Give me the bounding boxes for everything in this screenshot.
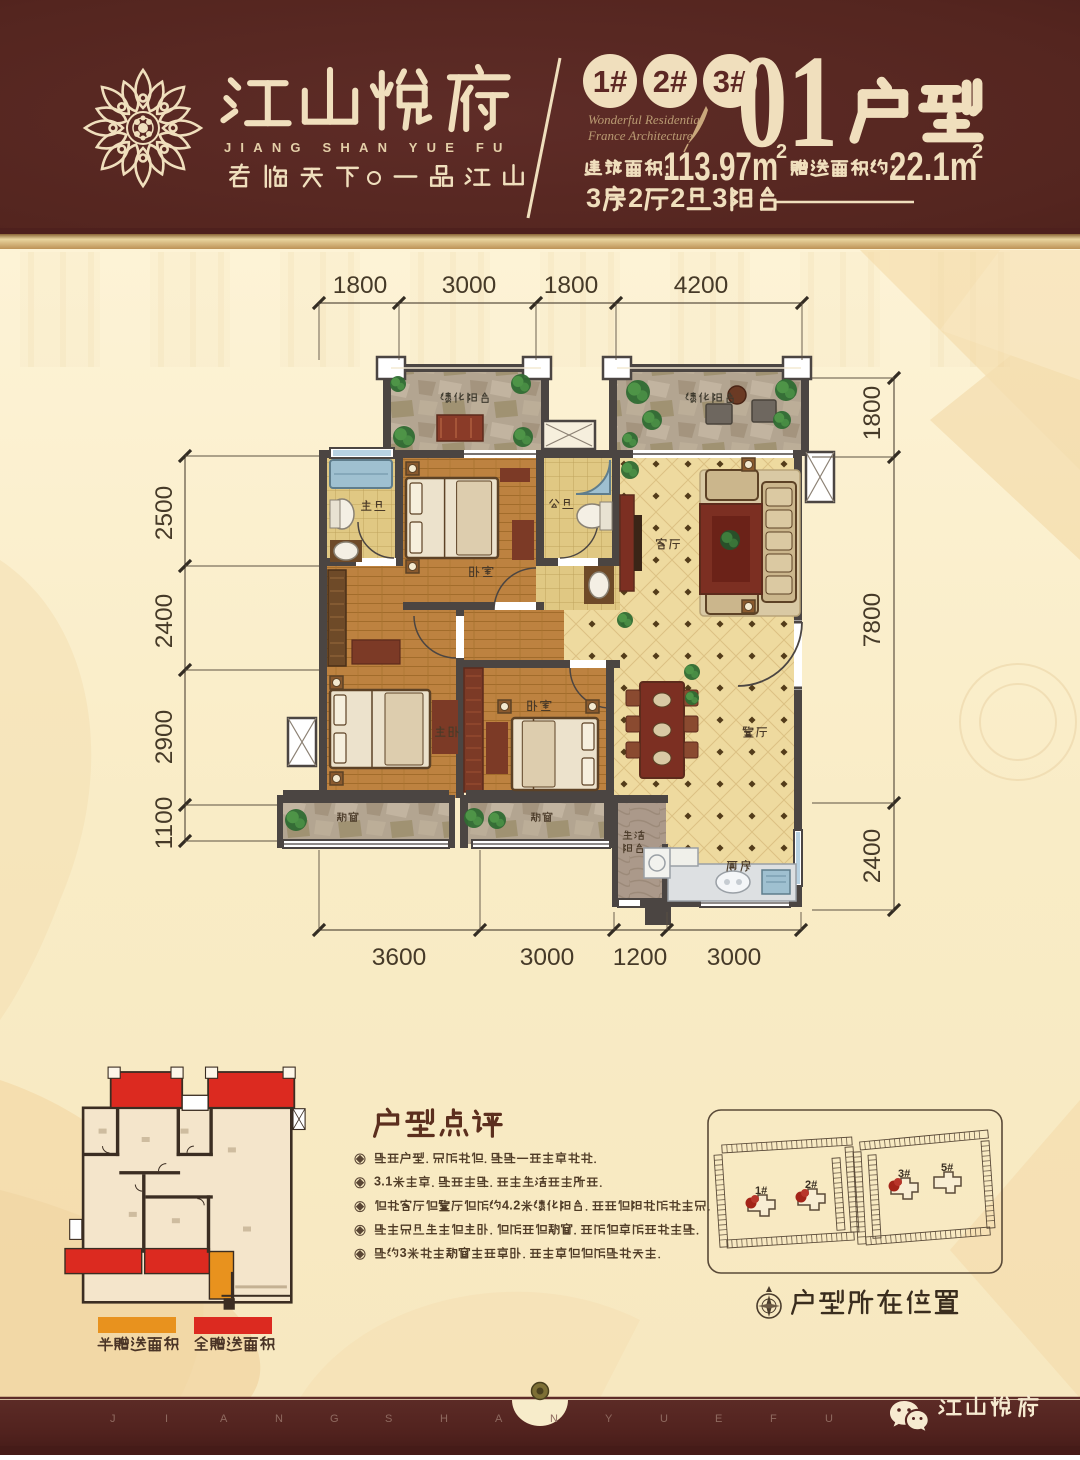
svg-text:U: U [660,1413,668,1425]
svg-text:1800: 1800 [544,272,599,299]
svg-text:2#: 2# [805,1179,817,1191]
svg-text:2: 2 [513,1198,520,1212]
svg-text:5#: 5# [941,1162,953,1174]
svg-text:N: N [550,1413,558,1425]
svg-text:3: 3 [374,1175,381,1189]
svg-text:S: S [385,1413,392,1425]
svg-text:3: 3 [586,183,601,213]
svg-text:1200: 1200 [613,944,668,971]
svg-text:4: 4 [502,1198,509,1212]
svg-text:I: I [165,1413,168,1425]
svg-text:2500: 2500 [151,486,178,541]
svg-text:3#: 3# [898,1168,910,1180]
svg-text:JIANG SHAN YUE FU: JIANG SHAN YUE FU [224,140,512,155]
svg-text:Y: Y [605,1413,613,1425]
svg-text:3: 3 [400,1246,407,1260]
svg-text:A: A [220,1413,228,1425]
svg-text:A: A [495,1413,503,1425]
svg-text:1#: 1# [593,64,627,99]
svg-text:3600: 3600 [372,944,427,971]
svg-text:3: 3 [712,183,727,213]
svg-text:U: U [825,1413,833,1425]
svg-text:3000: 3000 [520,944,575,971]
svg-text:2: 2 [972,141,983,163]
svg-text:2400: 2400 [859,829,886,884]
svg-text:4200: 4200 [674,272,729,299]
svg-text:H: H [440,1413,448,1425]
svg-text:1: 1 [385,1175,392,1189]
svg-text:2#: 2# [653,64,687,99]
svg-text:G: G [330,1413,339,1425]
svg-text:2: 2 [628,183,643,213]
svg-text:2: 2 [776,141,787,163]
svg-text:Wonderful Residential: Wonderful Residential [588,112,704,127]
svg-text:2400: 2400 [151,594,178,649]
svg-text:2: 2 [670,183,685,213]
svg-text:J: J [110,1413,116,1425]
svg-text:1#: 1# [755,1185,767,1197]
svg-text:1800: 1800 [333,272,388,299]
svg-text:3000: 3000 [442,272,497,299]
svg-text:1800: 1800 [859,386,886,441]
svg-text:22.1m: 22.1m [889,144,977,189]
svg-text:N: N [275,1413,283,1425]
svg-text:2900: 2900 [151,710,178,765]
svg-text:1100: 1100 [151,797,178,850]
svg-text:3000: 3000 [707,944,762,971]
svg-text:France Architecture: France Architecture [587,128,693,143]
svg-text:E: E [715,1413,722,1425]
svg-text:F: F [770,1413,777,1425]
svg-text:7800: 7800 [859,593,886,648]
